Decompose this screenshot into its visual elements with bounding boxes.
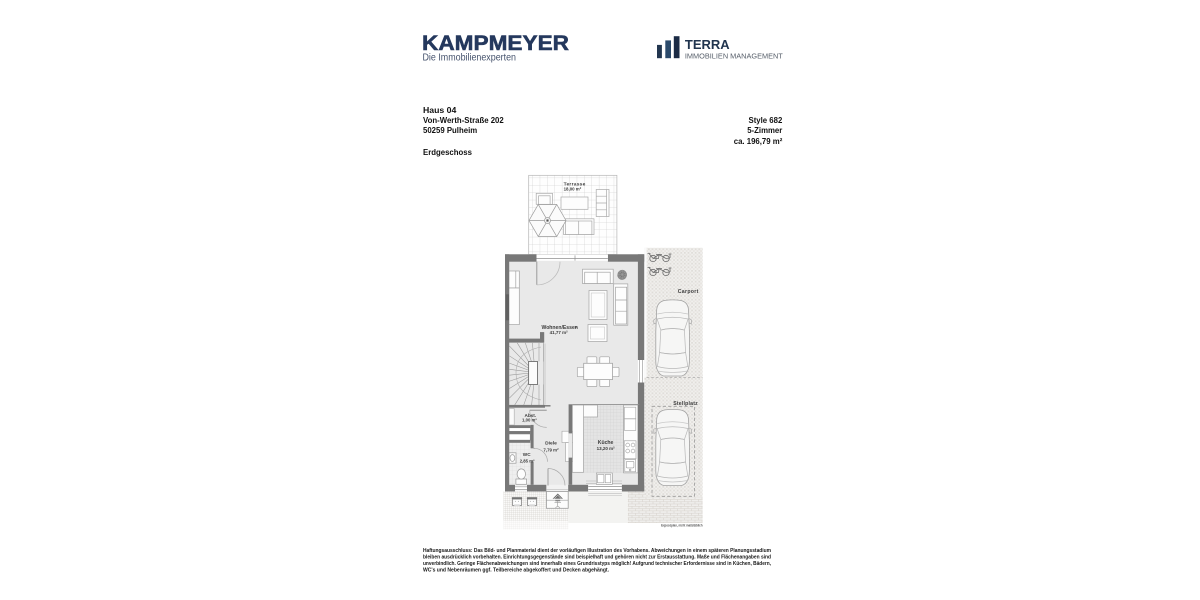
svg-text:18,00 m²: 18,00 m² [564, 187, 582, 192]
svg-text:Stellplatz: Stellplatz [673, 401, 698, 407]
svg-text:1,00 m²: 1,00 m² [522, 418, 537, 423]
svg-text:Exposéplan, nicht maßstäblich: Exposéplan, nicht maßstäblich [661, 524, 703, 528]
svg-text:7,79 m²: 7,79 m² [543, 448, 559, 453]
svg-text:Diele: Diele [545, 441, 557, 447]
svg-text:41,77 m²: 41,77 m² [550, 330, 569, 335]
svg-text:Küche: Küche [598, 440, 614, 446]
svg-text:2,85 m²: 2,85 m² [520, 459, 535, 464]
svg-text:Carport: Carport [678, 289, 699, 295]
svg-text:13,20 m²: 13,20 m² [597, 446, 616, 451]
svg-text:WC: WC [523, 452, 531, 457]
